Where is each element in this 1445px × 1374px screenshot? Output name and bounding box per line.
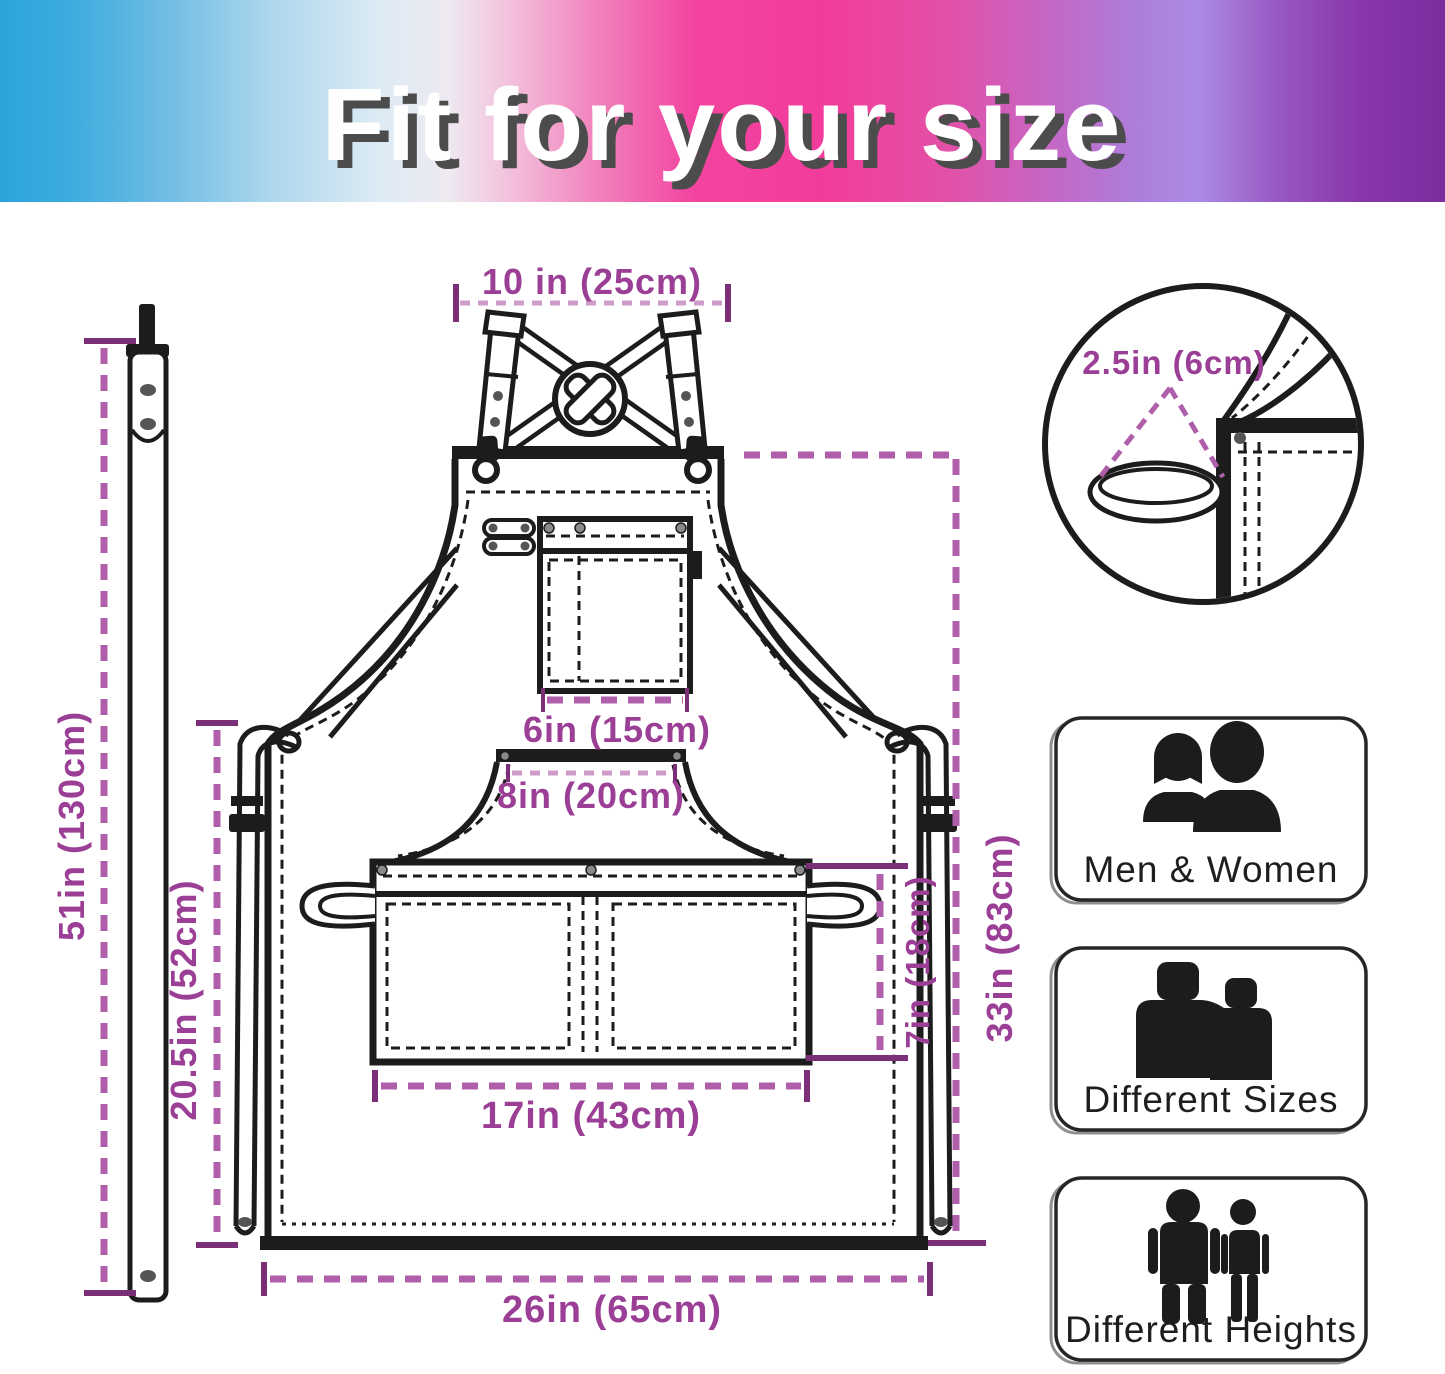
towel-loop-right (807, 884, 880, 926)
feature-label-men-women: Men & Women (1083, 849, 1338, 890)
apron-bottom-hem (260, 1236, 928, 1250)
chest-pocket (540, 519, 702, 691)
hanging-loop (1090, 463, 1222, 521)
dim-label-waist-pocket-width: 17in (43cm) (481, 1095, 701, 1137)
bib-grommet-left (475, 459, 497, 481)
dim-waist-pocket-width: 17in (43cm) (375, 1070, 807, 1137)
side-tie-left (229, 727, 299, 1233)
pen-holder-loops (484, 520, 534, 554)
dim-label-hanging-loop: 2.5in (6cm) (1082, 344, 1265, 381)
brand-tag (689, 551, 702, 579)
feature-label-different-heights: Different Heights (1065, 1309, 1357, 1350)
waist-pocket (373, 862, 809, 1062)
dim-label-side-tie: 20.5in (52cm) (163, 879, 204, 1120)
dim-label-apron-length: 33in (83cm) (979, 833, 1020, 1042)
feature-card-different-sizes: Different Sizes (1051, 948, 1366, 1133)
dim-label-waist-top: 8in (20cm) (497, 775, 685, 816)
size-infographic: Fit for your size Fit for your size 51in… (0, 0, 1445, 1374)
dim-apron-length: 33in (83cm) (744, 455, 1020, 1243)
dim-label-apron-width: 26in (65cm) (502, 1289, 722, 1331)
feature-card-men-women: Men & Women (1051, 718, 1366, 903)
towel-loop-left (302, 884, 375, 926)
page-title: Fit for your size (322, 67, 1123, 182)
fit-diagram-svg: Fit for your size Fit for your size 51in… (0, 0, 1445, 1374)
dim-strap-length: 51in (130cm) (51, 341, 136, 1293)
adjustable-strap-diagram (126, 304, 169, 1300)
banner: Fit for your size Fit for your size (0, 0, 1445, 202)
dim-apron-width: 26in (65cm) (264, 1262, 930, 1331)
dim-waist-top-width: 8in (20cm) (497, 764, 685, 816)
feature-card-different-heights: Different Heights (1051, 1178, 1366, 1363)
dim-side-tie-length: 20.5in (52cm) (163, 723, 238, 1245)
bib-grommet-right (687, 459, 709, 481)
dim-chest-pocket-width: 6in (15cm) (523, 688, 711, 750)
feature-label-different-sizes: Different Sizes (1084, 1079, 1339, 1120)
dim-label-chest-pocket: 6in (15cm) (523, 709, 711, 750)
dim-label-neck-strap: 10 in (25cm) (482, 261, 702, 302)
dim-label-waist-pocket-height: 7in (18cm) (899, 875, 936, 1048)
detail-view: 2.5in (6cm) (1045, 286, 1386, 608)
dim-label-strap-length: 51in (130cm) (51, 711, 92, 941)
neck-strap-assembly (479, 312, 705, 463)
